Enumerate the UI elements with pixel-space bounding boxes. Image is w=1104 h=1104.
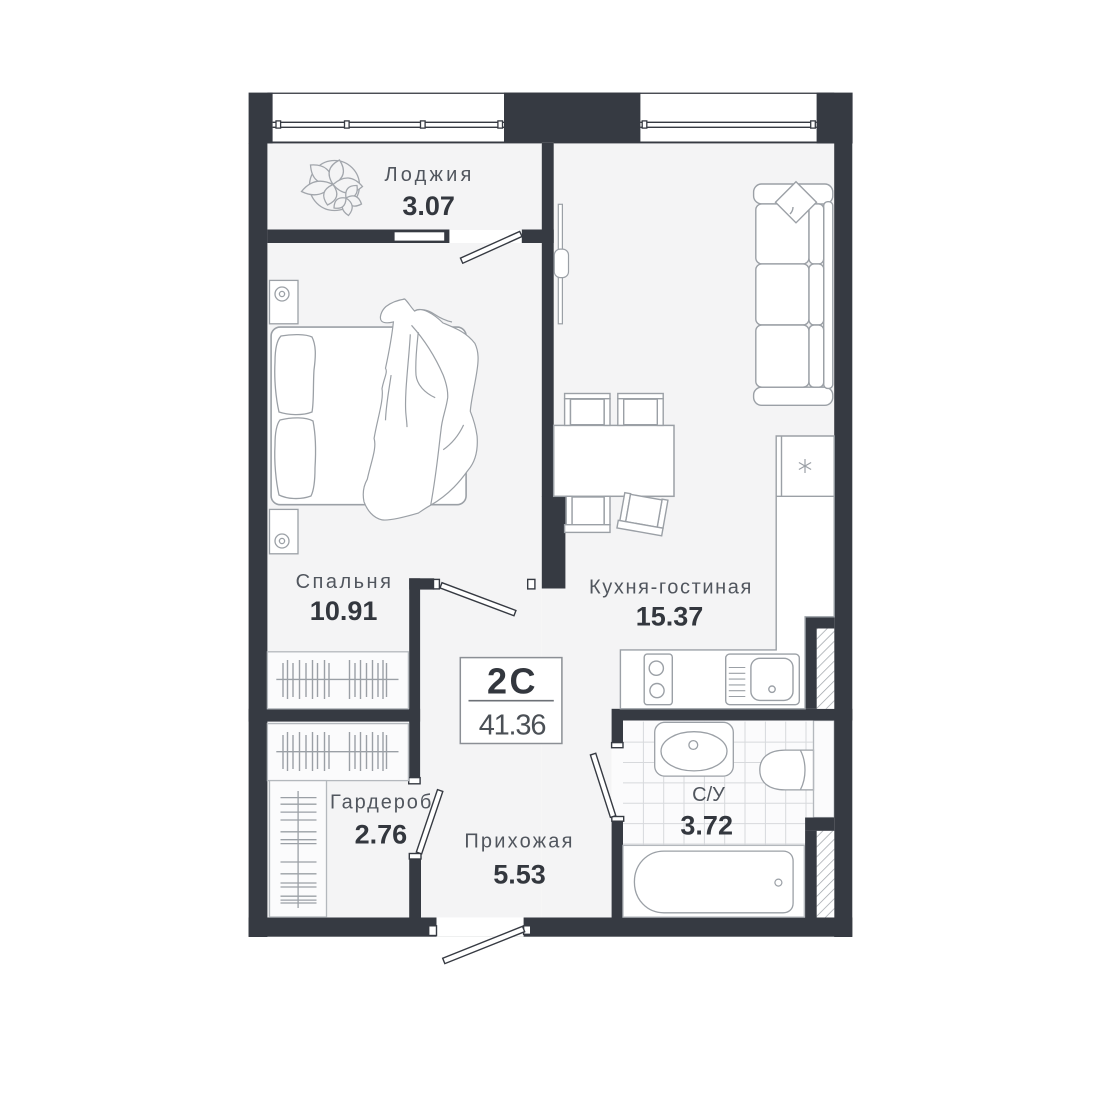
svg-text:Прихожая: Прихожая <box>464 831 574 853</box>
svg-text:2С: 2С <box>487 661 538 702</box>
svg-text:С/У: С/У <box>692 784 725 806</box>
svg-text:15.37: 15.37 <box>636 602 704 632</box>
svg-text:10.91: 10.91 <box>310 596 378 626</box>
svg-text:Лоджия: Лоджия <box>384 164 474 186</box>
svg-text:3.72: 3.72 <box>680 811 733 841</box>
svg-text:Спальня: Спальня <box>296 571 394 593</box>
svg-text:5.53: 5.53 <box>493 859 546 889</box>
svg-text:Кухня-гостиная: Кухня-гостиная <box>589 577 753 599</box>
svg-text:Гардероб: Гардероб <box>330 792 433 814</box>
svg-text:41.36: 41.36 <box>479 710 546 742</box>
svg-text:3.07: 3.07 <box>402 191 455 221</box>
svg-text:2.76: 2.76 <box>355 819 408 849</box>
